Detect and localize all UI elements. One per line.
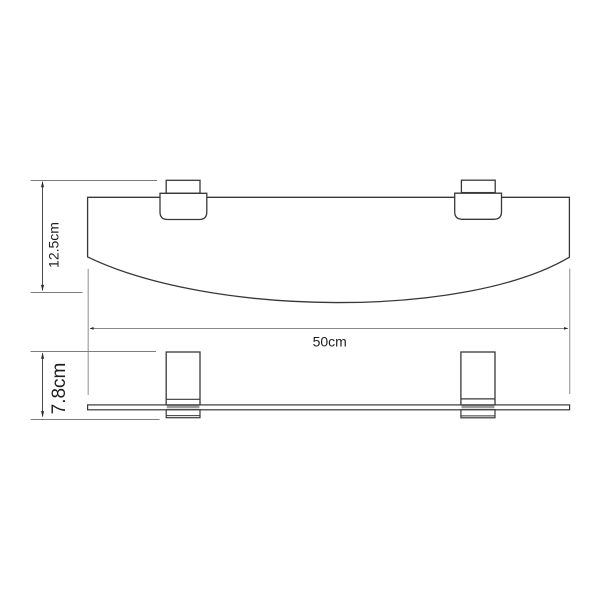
svg-text:7.8cm: 7.8cm [49,363,70,415]
svg-text:12.5cm: 12.5cm [46,222,62,268]
svg-text:50cm: 50cm [313,334,347,350]
